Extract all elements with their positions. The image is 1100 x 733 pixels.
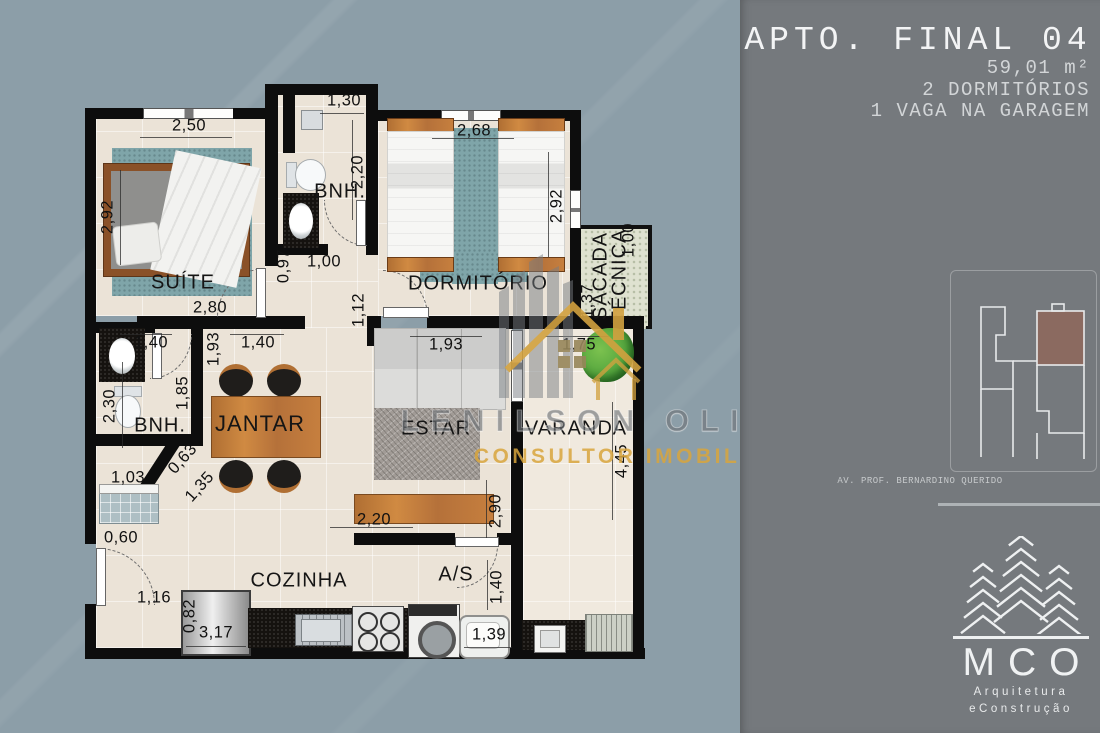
keyplan-unit-highlight bbox=[1037, 311, 1084, 365]
footboard bbox=[387, 257, 454, 272]
wall bbox=[497, 533, 514, 545]
wall bbox=[265, 84, 278, 266]
tank-bowl bbox=[540, 630, 560, 648]
laundry-door[interactable] bbox=[455, 537, 499, 547]
dim-kitchen: 3,17 bbox=[199, 624, 233, 643]
suite-door[interactable] bbox=[256, 268, 266, 318]
bedroom-door[interactable] bbox=[383, 307, 429, 318]
wall bbox=[570, 110, 581, 190]
apartment-garage: 1 VAGA NA GARAGEM bbox=[871, 100, 1090, 122]
dim-bathroom2-left: 2,30 bbox=[101, 389, 120, 423]
stove bbox=[352, 606, 404, 652]
mco-logo-sub1: Arquitetura bbox=[943, 686, 1099, 698]
keyplan bbox=[950, 270, 1097, 472]
dim-bedroom-side: 2,92 bbox=[548, 189, 567, 223]
dim-line bbox=[464, 647, 512, 648]
dim-sofa: 1,93 bbox=[429, 336, 463, 355]
dim-bathroom2-right: 1,85 bbox=[174, 376, 193, 410]
double-bed bbox=[103, 163, 250, 277]
dim-suite-bottom: 2,80 bbox=[193, 299, 227, 318]
dim-line bbox=[320, 113, 364, 114]
city-buildings bbox=[499, 254, 573, 398]
watermark-logo bbox=[495, 248, 645, 418]
tree-chevron bbox=[967, 590, 999, 602]
washer-drum bbox=[418, 621, 456, 659]
wall bbox=[191, 322, 203, 446]
dim-line bbox=[120, 170, 121, 265]
bathroom1-sink bbox=[289, 203, 313, 239]
dim-bathroom1-top: 1,30 bbox=[327, 92, 361, 111]
dim-suite-top: 2,50 bbox=[172, 117, 206, 136]
burner bbox=[358, 612, 378, 632]
mco-logo-line bbox=[953, 636, 1089, 639]
washing-machine bbox=[408, 604, 460, 658]
wall bbox=[85, 322, 96, 544]
dim-entry-wall: 0,60 bbox=[104, 529, 138, 548]
wall bbox=[137, 316, 305, 329]
apartment-bedrooms: 2 DORMITÓRIOS bbox=[922, 79, 1090, 101]
room-label-dining: JANTAR bbox=[215, 411, 305, 437]
chair bbox=[267, 460, 301, 493]
dim-dining-top: 1,40 bbox=[241, 334, 275, 353]
dim-entry-door: 1,16 bbox=[137, 589, 171, 608]
burner bbox=[380, 612, 400, 632]
entry-door[interactable] bbox=[96, 548, 106, 606]
dim-line bbox=[140, 137, 232, 138]
dim-rack-side: 2,90 bbox=[487, 494, 506, 528]
tree-chevron bbox=[1006, 549, 1036, 561]
dim-fridge: 0,82 bbox=[181, 599, 200, 633]
floorplan-poster: 2,50 2,92 2,80 1,30 2,20 0,97 1,00 2,68 … bbox=[0, 0, 1100, 733]
dim-laundry: 1,39 bbox=[472, 626, 506, 645]
dim-bedroom-pass: 1,12 bbox=[350, 293, 369, 327]
chimney bbox=[613, 308, 624, 340]
washer-panel bbox=[409, 605, 457, 616]
mco-logo-sub2: eConstrução bbox=[943, 703, 1099, 715]
room-label-bathroom2: BNH. bbox=[134, 415, 186, 438]
tree-chevron bbox=[1043, 592, 1075, 604]
burner bbox=[358, 632, 378, 652]
bedroom-side-window bbox=[570, 190, 581, 230]
chair bbox=[219, 364, 253, 397]
bed-linen bbox=[387, 131, 454, 259]
tree-chevron bbox=[997, 588, 1045, 607]
wall bbox=[354, 533, 455, 545]
tree-chevron bbox=[970, 577, 996, 587]
entry-tile bbox=[99, 492, 159, 524]
dim-line bbox=[186, 646, 246, 647]
street-label: AV. PROF. BERNARDINO QUERIDO bbox=[740, 476, 1100, 486]
dim-laundry-side: 1,40 bbox=[488, 570, 507, 604]
tree-chevron bbox=[1009, 536, 1033, 545]
info-panel: APTO. FINAL 04 59,01 m² 2 DORMITÓRIOS 1 … bbox=[740, 0, 1100, 733]
single-bed-1 bbox=[387, 118, 452, 270]
dim-bathroom2-top: 1,40 bbox=[134, 334, 168, 353]
dim-dining-side: 1,93 bbox=[205, 332, 224, 366]
apartment-title: APTO. FINAL 04 bbox=[740, 22, 1096, 59]
panel-divider bbox=[938, 503, 1100, 506]
tree-chevron bbox=[1049, 566, 1069, 574]
tree-chevron bbox=[973, 564, 993, 572]
tank-sink bbox=[534, 625, 566, 653]
dim-rack: 2,20 bbox=[357, 511, 391, 530]
room-label-bathroom1: BNH. bbox=[314, 181, 366, 204]
room-label-kitchen: COZINHA bbox=[251, 570, 348, 593]
dim-suite-left: 2,92 bbox=[99, 200, 118, 234]
mco-logo-name: MCO bbox=[943, 641, 1099, 685]
chair bbox=[267, 364, 301, 397]
tree-chevron bbox=[1046, 579, 1072, 589]
dim-bedroom-top: 2,68 bbox=[457, 122, 491, 141]
mco-logo-trees bbox=[953, 536, 1089, 634]
wall bbox=[85, 108, 96, 328]
chair bbox=[219, 460, 253, 493]
shower-divider bbox=[283, 95, 295, 153]
dim-hall-side: 0,97 bbox=[275, 249, 294, 283]
dim-bathroom1-door: 1,00 bbox=[307, 253, 341, 272]
drying-rack bbox=[585, 614, 633, 652]
room-label-laundry: A/S bbox=[438, 564, 473, 587]
burner bbox=[380, 632, 400, 652]
sink-bowl bbox=[301, 619, 341, 642]
room-label-suite: SUÍTE bbox=[151, 272, 215, 295]
tree-chevron bbox=[1037, 618, 1081, 634]
wall bbox=[88, 108, 143, 119]
apartment-area: 59,01 m² bbox=[987, 57, 1090, 79]
dim-line bbox=[122, 362, 123, 448]
dim-bathroom2-bottom: 1,03 bbox=[111, 469, 145, 488]
bathroom1-door[interactable] bbox=[356, 200, 366, 246]
